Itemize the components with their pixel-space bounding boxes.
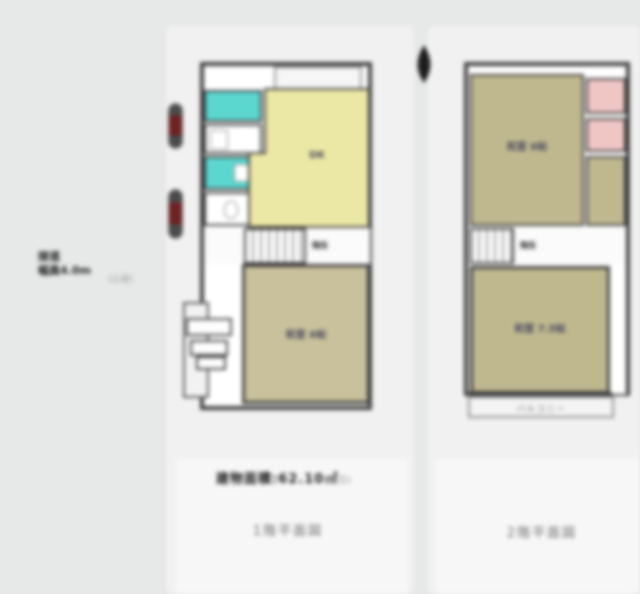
- entrance-step: [196, 356, 226, 370]
- utility-pole-marker-icon: [169, 190, 182, 238]
- floor2-closet: [586, 156, 626, 226]
- area-caption-note: (壁芯): [326, 473, 351, 486]
- floor1-tatami-room: 和室 6帖: [242, 264, 370, 404]
- north-arrow-icon: [410, 44, 438, 84]
- floor2-closet-pink: [586, 78, 626, 114]
- floor1-hall: 階段: [204, 228, 370, 264]
- floor1-stairs: [244, 228, 306, 264]
- entrance-step: [186, 318, 232, 336]
- floor2-side-strip: [612, 266, 626, 394]
- site-note-line1: 接道: [38, 250, 118, 264]
- floor1-stairs-label: 階段: [312, 240, 328, 251]
- floor2-stairs: [470, 228, 514, 264]
- floor2-closet-pink: [586, 118, 626, 152]
- floorplan-art: 接道 幅員4.0m (公道) DK 階段: [0, 0, 640, 594]
- washing-machine-icon: [210, 130, 228, 150]
- floor2-balcony: バルコニー: [468, 396, 614, 418]
- floor1-bathroom: [204, 90, 262, 122]
- utility-pole-marker-icon: [169, 104, 182, 148]
- floor2-plan: 和室 6帖 階段 和室 7.5帖: [464, 62, 630, 396]
- floor2-hall: 階段: [470, 228, 626, 264]
- floor1-title: 1階平面図: [188, 520, 388, 539]
- floor1-utility: [204, 124, 262, 154]
- floor1-tatami-label: 和室 6帖: [245, 330, 367, 342]
- floor2-tatami-south: 和室 7.5帖: [470, 266, 610, 394]
- floor2-tatami-north-label: 和室 6帖: [472, 142, 582, 154]
- site-note: 接道 幅員4.0m: [38, 250, 118, 278]
- floor2-balcony-label: バルコニー: [470, 402, 612, 415]
- floor2-stairs-label: 階段: [520, 240, 536, 251]
- floor2-title: 2階平面図: [442, 522, 640, 541]
- site-note-line2: 幅員4.0m: [38, 264, 118, 278]
- toilet-icon: [224, 201, 238, 219]
- floorplan-image: 接道 幅員4.0m (公道) DK 階段: [0, 0, 640, 594]
- floor2-tatami-south-label: 和室 7.5帖: [473, 324, 607, 336]
- area-caption: 建物面積:62.10㎡: [216, 468, 338, 487]
- floor1-porch: [274, 66, 362, 90]
- floor2-tatami-north: 和室 6帖: [470, 74, 584, 226]
- floor1-dk-label: DK: [266, 150, 368, 162]
- entrance-step: [190, 340, 228, 356]
- site-note-sub: (公道): [108, 272, 133, 285]
- floor1-dk-room: DK: [264, 88, 370, 228]
- floor1-dk-kitchen-ext: [248, 152, 266, 228]
